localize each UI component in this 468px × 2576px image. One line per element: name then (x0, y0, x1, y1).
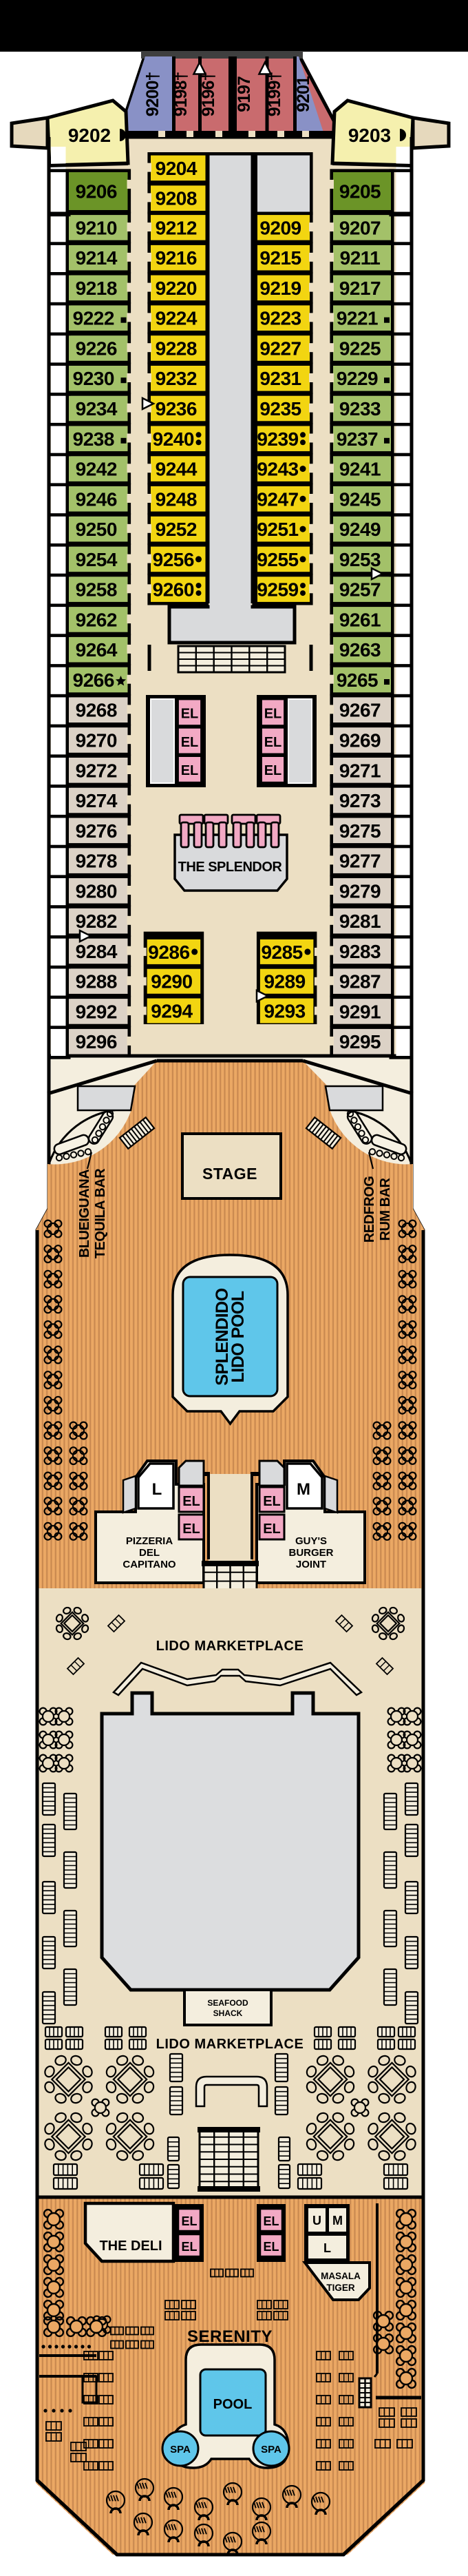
svg-text:9208: 9208 (156, 188, 197, 209)
svg-text:9236: 9236 (156, 398, 197, 419)
svg-text:9223: 9223 (259, 308, 301, 329)
svg-text:9221: 9221 (337, 308, 378, 329)
svg-text:9214: 9214 (76, 247, 118, 269)
svg-text:9202: 9202 (68, 125, 111, 146)
svg-text:9292: 9292 (76, 1001, 117, 1022)
svg-text:POOL: POOL (213, 2397, 253, 2412)
svg-text:DEL: DEL (139, 1547, 160, 1559)
svg-text:9207: 9207 (339, 217, 381, 238)
svg-text:9258: 9258 (76, 579, 117, 601)
svg-text:9228: 9228 (156, 338, 197, 360)
svg-text:TIGER: TIGER (326, 2283, 355, 2293)
svg-text:9212: 9212 (156, 217, 197, 238)
svg-text:EL: EL (264, 763, 282, 778)
svg-text:BURGER: BURGER (288, 1547, 333, 1559)
svg-text:9250: 9250 (76, 519, 117, 540)
svg-text:9252: 9252 (156, 519, 197, 540)
svg-text:9238: 9238 (73, 428, 114, 450)
svg-text:9233: 9233 (339, 398, 381, 419)
svg-text:9215: 9215 (259, 247, 301, 269)
svg-text:9286: 9286 (148, 942, 189, 963)
svg-text:9216: 9216 (156, 247, 197, 269)
svg-text:9260: 9260 (153, 579, 194, 601)
svg-text:SPA: SPA (261, 2444, 281, 2455)
svg-text:EL: EL (181, 2240, 197, 2254)
svg-text:EL: EL (182, 1521, 200, 1537)
svg-text:9220: 9220 (156, 278, 197, 299)
svg-text:EL: EL (181, 707, 199, 722)
svg-text:LIDO MARKETPLACE: LIDO MARKETPLACE (156, 2037, 304, 2052)
svg-text:9262: 9262 (76, 609, 117, 630)
svg-text:9242: 9242 (76, 459, 117, 480)
svg-text:EL: EL (181, 763, 199, 778)
svg-text:9273: 9273 (339, 790, 381, 811)
svg-text:GUY'S: GUY'S (295, 1535, 327, 1547)
svg-text:9227: 9227 (259, 338, 301, 360)
svg-text:9256: 9256 (153, 549, 194, 570)
svg-text:9280: 9280 (76, 880, 117, 902)
svg-text:9230: 9230 (73, 368, 114, 389)
svg-text:EL: EL (263, 1521, 281, 1537)
svg-text:9232: 9232 (156, 368, 197, 389)
svg-text:9291: 9291 (339, 1001, 381, 1022)
svg-text:9229: 9229 (337, 368, 378, 389)
svg-text:9234: 9234 (76, 398, 118, 419)
svg-text:M: M (332, 2214, 343, 2227)
svg-text:STAGE: STAGE (202, 1165, 257, 1183)
svg-text:9269: 9269 (339, 730, 381, 751)
svg-text:EL: EL (182, 1494, 200, 1509)
svg-text:9283: 9283 (339, 941, 381, 962)
svg-text:SEAFOOD: SEAFOOD (207, 1998, 248, 2008)
svg-text:9222: 9222 (73, 308, 114, 329)
svg-text:9294: 9294 (151, 1001, 193, 1022)
svg-text:9281: 9281 (339, 911, 381, 932)
svg-text:U: U (312, 2214, 321, 2227)
svg-text:9225: 9225 (339, 338, 381, 360)
svg-text:9205: 9205 (339, 181, 381, 202)
svg-text:9231: 9231 (259, 368, 301, 389)
svg-text:9247: 9247 (257, 488, 298, 510)
svg-text:9197: 9197 (235, 76, 254, 112)
svg-text:9245: 9245 (339, 488, 381, 510)
svg-text:LIDO POOL: LIDO POOL (228, 1291, 248, 1382)
svg-text:9235: 9235 (259, 398, 301, 419)
svg-text:SHACK: SHACK (213, 2008, 243, 2018)
svg-text:9200†: 9200† (143, 72, 162, 117)
svg-text:9219: 9219 (259, 278, 301, 299)
svg-text:9287: 9287 (339, 971, 381, 993)
svg-text:9257: 9257 (339, 579, 381, 601)
svg-text:9289: 9289 (264, 971, 305, 993)
svg-text:9249: 9249 (339, 519, 381, 540)
svg-text:EL: EL (264, 735, 282, 750)
svg-text:L: L (323, 2241, 331, 2255)
svg-text:9224: 9224 (156, 308, 198, 329)
svg-text:9204: 9204 (156, 158, 198, 179)
svg-text:9274: 9274 (76, 790, 118, 811)
svg-text:THE SPLENDOR: THE SPLENDOR (178, 860, 283, 875)
svg-text:9218: 9218 (76, 278, 117, 299)
svg-text:THE DELI: THE DELI (99, 2239, 162, 2254)
svg-text:LIDO MARKETPLACE: LIDO MARKETPLACE (156, 1639, 304, 1654)
svg-text:JOINT: JOINT (296, 1559, 326, 1570)
svg-text:9296: 9296 (76, 1031, 117, 1052)
svg-text:9199†: 9199† (265, 72, 284, 117)
svg-text:9276: 9276 (76, 820, 117, 842)
svg-text:9254: 9254 (76, 549, 118, 570)
svg-text:9251: 9251 (257, 519, 298, 540)
svg-text:9209: 9209 (259, 217, 301, 238)
svg-text:9284: 9284 (76, 941, 118, 962)
svg-text:TEQUILA BAR: TEQUILA BAR (93, 1168, 108, 1258)
svg-text:9279: 9279 (339, 880, 381, 902)
svg-text:9244: 9244 (156, 459, 198, 480)
svg-text:9263: 9263 (339, 639, 381, 661)
svg-text:9196†: 9196† (199, 72, 218, 117)
svg-text:EL: EL (263, 2240, 279, 2254)
svg-text:9239: 9239 (257, 428, 298, 450)
svg-text:9253: 9253 (339, 549, 381, 570)
svg-text:9268: 9268 (76, 700, 117, 721)
svg-text:EL: EL (263, 2214, 279, 2228)
svg-text:SERENITY: SERENITY (187, 2327, 273, 2346)
svg-text:9288: 9288 (76, 971, 117, 993)
svg-text:L: L (152, 1480, 162, 1499)
svg-text:9240: 9240 (153, 428, 194, 450)
svg-text:9270: 9270 (76, 730, 117, 751)
svg-text:9295: 9295 (339, 1031, 381, 1052)
svg-text:9217: 9217 (339, 278, 381, 299)
svg-text:9282: 9282 (76, 911, 117, 932)
svg-text:9261: 9261 (339, 609, 381, 630)
svg-text:9210: 9210 (76, 217, 117, 238)
svg-text:9277: 9277 (339, 851, 381, 872)
svg-text:9271: 9271 (339, 760, 381, 781)
svg-text:BLUEIGUANA: BLUEIGUANA (77, 1170, 92, 1258)
svg-text:9206: 9206 (76, 181, 117, 202)
svg-text:9264: 9264 (76, 639, 118, 661)
svg-text:9290: 9290 (151, 971, 192, 993)
svg-text:9201: 9201 (294, 76, 313, 112)
svg-text:PIZZERIA: PIZZERIA (126, 1535, 173, 1547)
svg-text:9266: 9266 (73, 669, 114, 691)
svg-text:9241: 9241 (339, 459, 381, 480)
svg-text:9272: 9272 (76, 760, 117, 781)
svg-text:CAPITANO: CAPITANO (123, 1559, 176, 1570)
svg-text:9211: 9211 (340, 247, 381, 269)
svg-text:REDFROG: REDFROG (362, 1176, 377, 1243)
svg-text:9267: 9267 (339, 700, 381, 721)
svg-text:9246: 9246 (76, 488, 117, 510)
svg-text:9285: 9285 (261, 942, 302, 963)
svg-text:9255: 9255 (257, 549, 298, 570)
svg-text:EL: EL (264, 707, 282, 722)
svg-text:9278: 9278 (76, 851, 117, 872)
svg-text:9203: 9203 (348, 125, 391, 146)
svg-text:EL: EL (181, 2214, 197, 2228)
svg-text:9198†: 9198† (171, 72, 191, 117)
svg-text:MASALA: MASALA (321, 2271, 361, 2281)
svg-text:EL: EL (181, 735, 199, 750)
svg-text:9293: 9293 (264, 1001, 305, 1022)
svg-text:M: M (297, 1480, 310, 1499)
svg-text:RUM BAR: RUM BAR (378, 1177, 393, 1240)
svg-text:9237: 9237 (337, 428, 378, 450)
svg-text:9265: 9265 (337, 669, 378, 691)
svg-text:SPA: SPA (170, 2444, 191, 2455)
svg-text:9275: 9275 (339, 820, 381, 842)
svg-text:9259: 9259 (257, 579, 298, 601)
svg-text:EL: EL (263, 1494, 281, 1509)
svg-text:9243: 9243 (257, 459, 298, 480)
svg-text:9248: 9248 (156, 488, 197, 510)
svg-text:9226: 9226 (76, 338, 117, 360)
